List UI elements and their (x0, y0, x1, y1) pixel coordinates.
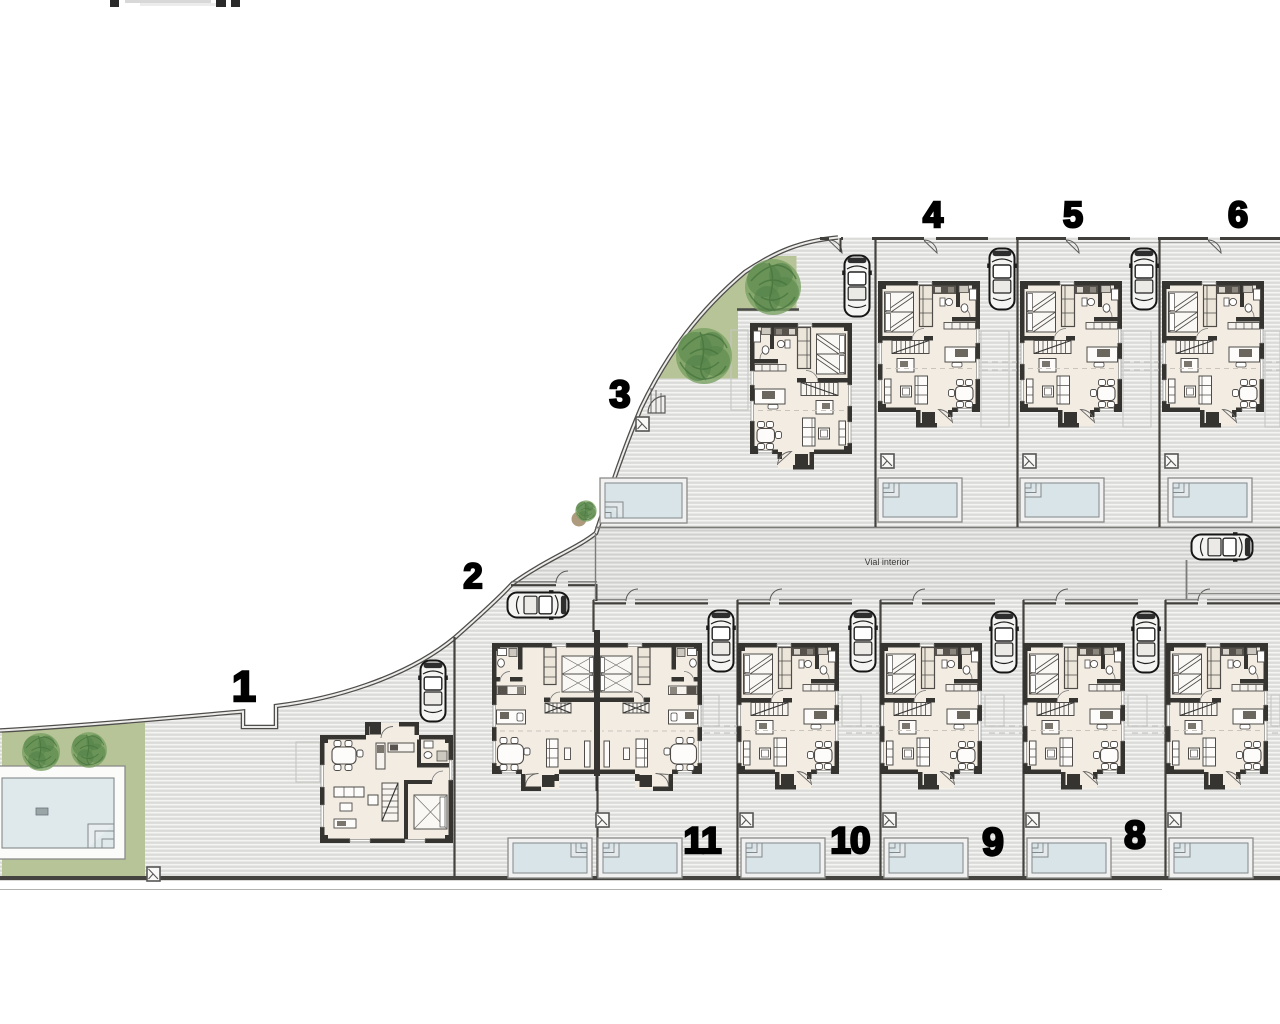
svg-text:2: 2 (463, 557, 482, 596)
svg-text:10: 10 (830, 820, 870, 861)
svg-text:9: 9 (982, 821, 1004, 864)
svg-text:11: 11 (683, 820, 721, 861)
svg-text:8: 8 (1124, 814, 1146, 857)
svg-text:4: 4 (923, 194, 943, 235)
svg-text:5: 5 (1063, 194, 1083, 235)
svg-text:Vial interior: Vial interior (865, 557, 910, 567)
svg-text:6: 6 (1228, 194, 1248, 235)
svg-text:3: 3 (609, 374, 630, 416)
svg-text:1: 1 (232, 663, 256, 711)
